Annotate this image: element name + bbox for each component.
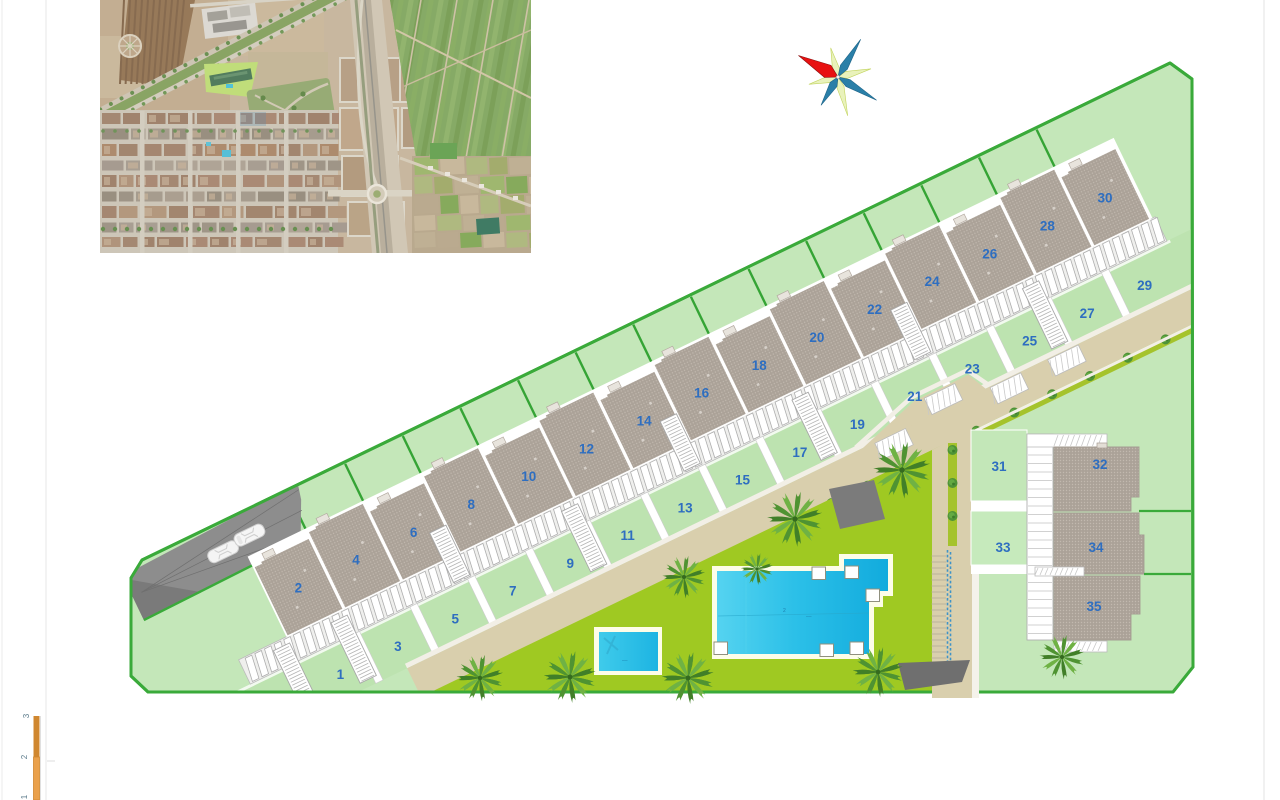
svg-text:34: 34 [1088,540,1104,555]
svg-text:3: 3 [394,639,402,654]
svg-text:35: 35 [1086,599,1102,614]
svg-text:29: 29 [1137,278,1152,293]
svg-text:17: 17 [792,445,807,460]
svg-text:13: 13 [678,500,694,515]
svg-text:9: 9 [566,556,574,571]
svg-text:4: 4 [352,553,360,568]
svg-text:16: 16 [694,386,710,401]
svg-text:15: 15 [735,473,751,488]
svg-text:––: –– [622,658,628,664]
svg-text:––: –– [806,614,812,620]
svg-text:20: 20 [809,330,824,345]
svg-text:2: 2 [295,581,303,596]
svg-text:28: 28 [1040,219,1056,234]
svg-text:26: 26 [982,246,998,261]
svg-text:22: 22 [867,302,882,317]
svg-text:27: 27 [1080,306,1095,321]
svg-text:10: 10 [521,469,536,484]
svg-text:25: 25 [1022,334,1038,349]
svg-text:7: 7 [509,584,517,599]
svg-text:12: 12 [579,441,594,456]
svg-text:21: 21 [907,389,923,404]
svg-text:1: 1 [20,794,29,799]
svg-text:1: 1 [337,667,345,682]
svg-text:11: 11 [620,528,635,543]
svg-text:2: 2 [783,608,786,614]
svg-text:3: 3 [22,713,31,718]
svg-text:18: 18 [752,358,768,373]
svg-text:23: 23 [965,362,981,377]
svg-text:2: 2 [20,754,29,759]
svg-text:30: 30 [1097,191,1112,206]
svg-text:19: 19 [850,417,865,432]
svg-text:32: 32 [1092,457,1107,472]
svg-text:8: 8 [467,497,475,512]
svg-text:24: 24 [925,274,941,289]
svg-text:5: 5 [452,611,460,626]
svg-text:6: 6 [410,525,418,540]
svg-text:14: 14 [637,414,653,429]
svg-text:31: 31 [991,459,1007,474]
svg-text:33: 33 [995,540,1011,555]
